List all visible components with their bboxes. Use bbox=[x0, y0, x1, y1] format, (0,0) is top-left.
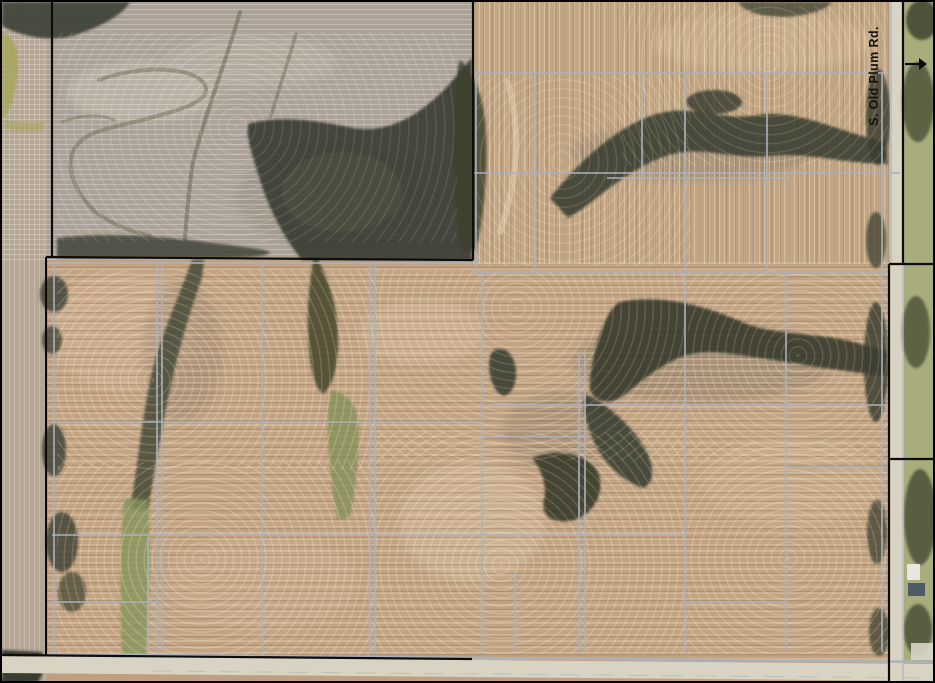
tile-line-overlay bbox=[2, 2, 935, 683]
aerial-plat-map[interactable]: S. Old Plum Rd. bbox=[0, 0, 935, 683]
boundary-line bbox=[46, 257, 473, 260]
tile-line bbox=[47, 654, 935, 662]
